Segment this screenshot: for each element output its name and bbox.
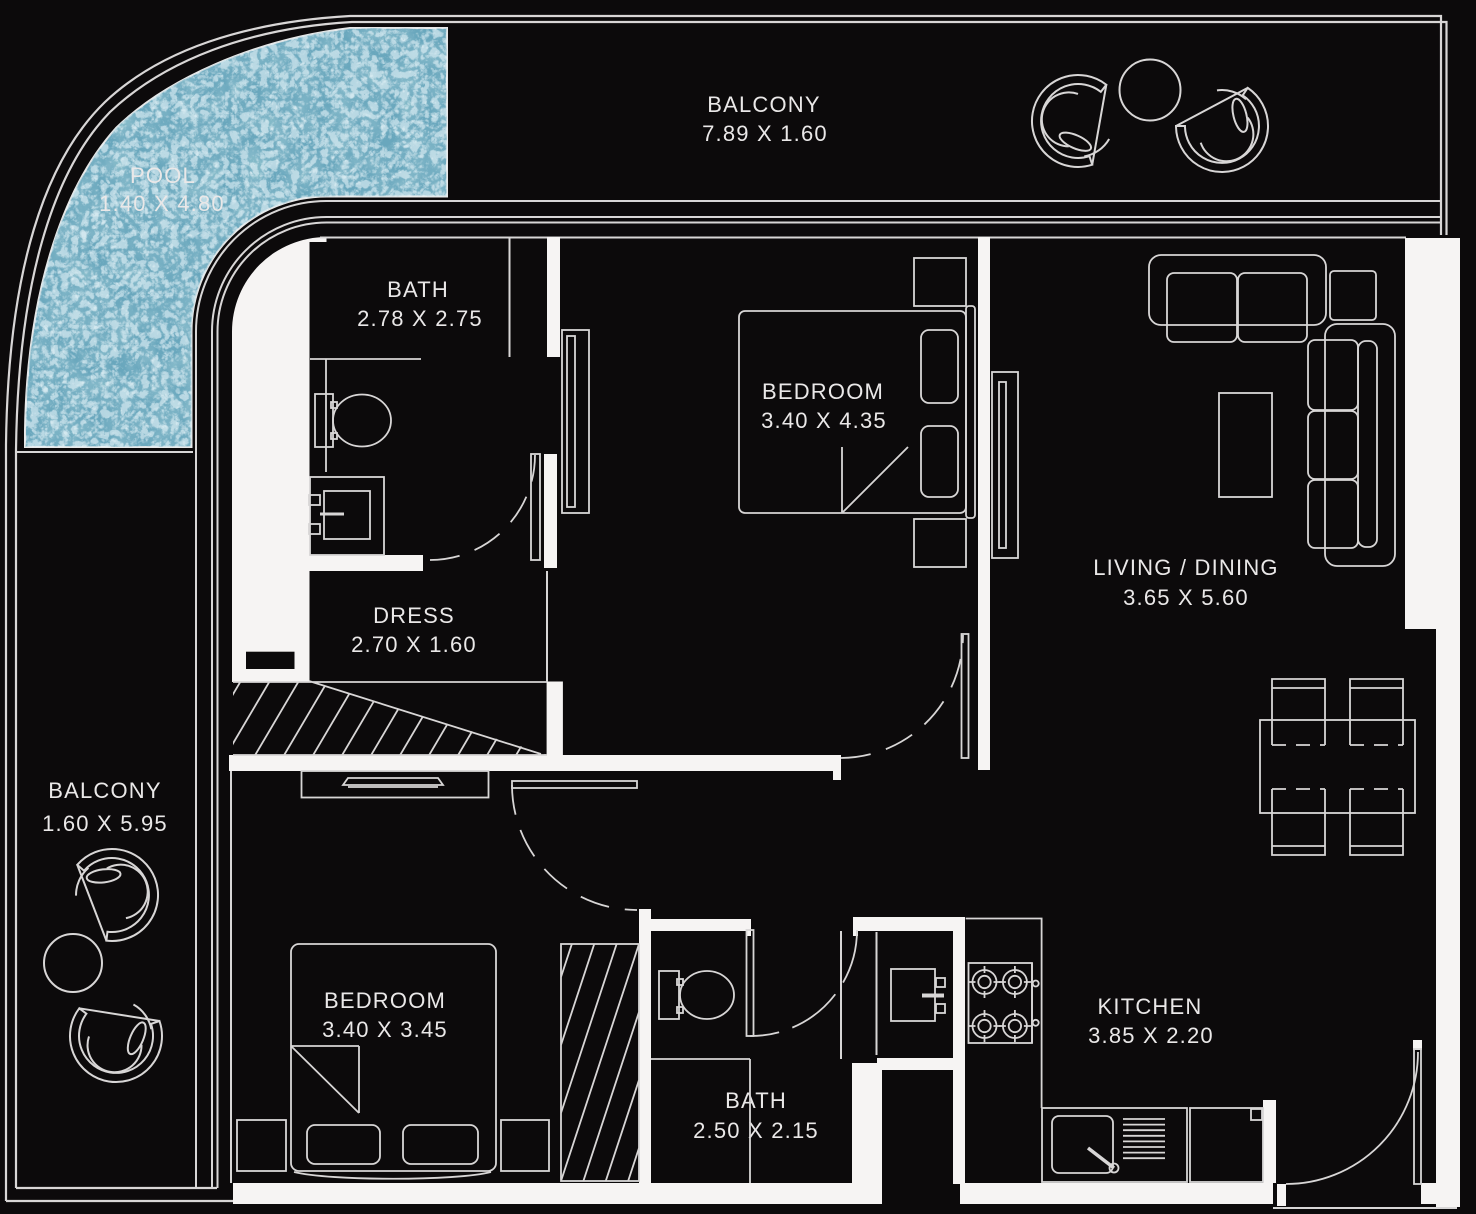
svg-text:1.40 X 4.80: 1.40 X 4.80 [99, 191, 225, 216]
svg-text:BATH: BATH [725, 1088, 787, 1113]
svg-text:7.89 X 1.60: 7.89 X 1.60 [702, 121, 828, 146]
svg-text:BEDROOM: BEDROOM [762, 379, 884, 404]
svg-text:BALCONY: BALCONY [707, 92, 821, 117]
svg-text:DRESS: DRESS [373, 603, 455, 628]
svg-text:BATH: BATH [387, 277, 449, 302]
svg-text:POOL: POOL [130, 163, 196, 188]
svg-text:3.40 X 3.45: 3.40 X 3.45 [322, 1017, 448, 1042]
svg-text:LIVING / DINING: LIVING / DINING [1093, 555, 1278, 580]
svg-text:BEDROOM: BEDROOM [324, 988, 446, 1013]
svg-text:2.70 X 1.60: 2.70 X 1.60 [351, 632, 477, 657]
svg-text:BALCONY: BALCONY [48, 778, 162, 803]
svg-text:2.50 X 2.15: 2.50 X 2.15 [693, 1118, 819, 1143]
svg-text:1.60 X 5.95: 1.60 X 5.95 [42, 811, 168, 836]
svg-text:3.65 X 5.60: 3.65 X 5.60 [1123, 585, 1249, 610]
svg-text:3.40 X 4.35: 3.40 X 4.35 [761, 408, 887, 433]
svg-text:3.85 X 2.20: 3.85 X 2.20 [1088, 1023, 1214, 1048]
svg-text:KITCHEN: KITCHEN [1098, 994, 1203, 1019]
svg-text:2.78 X 2.75: 2.78 X 2.75 [357, 306, 483, 331]
